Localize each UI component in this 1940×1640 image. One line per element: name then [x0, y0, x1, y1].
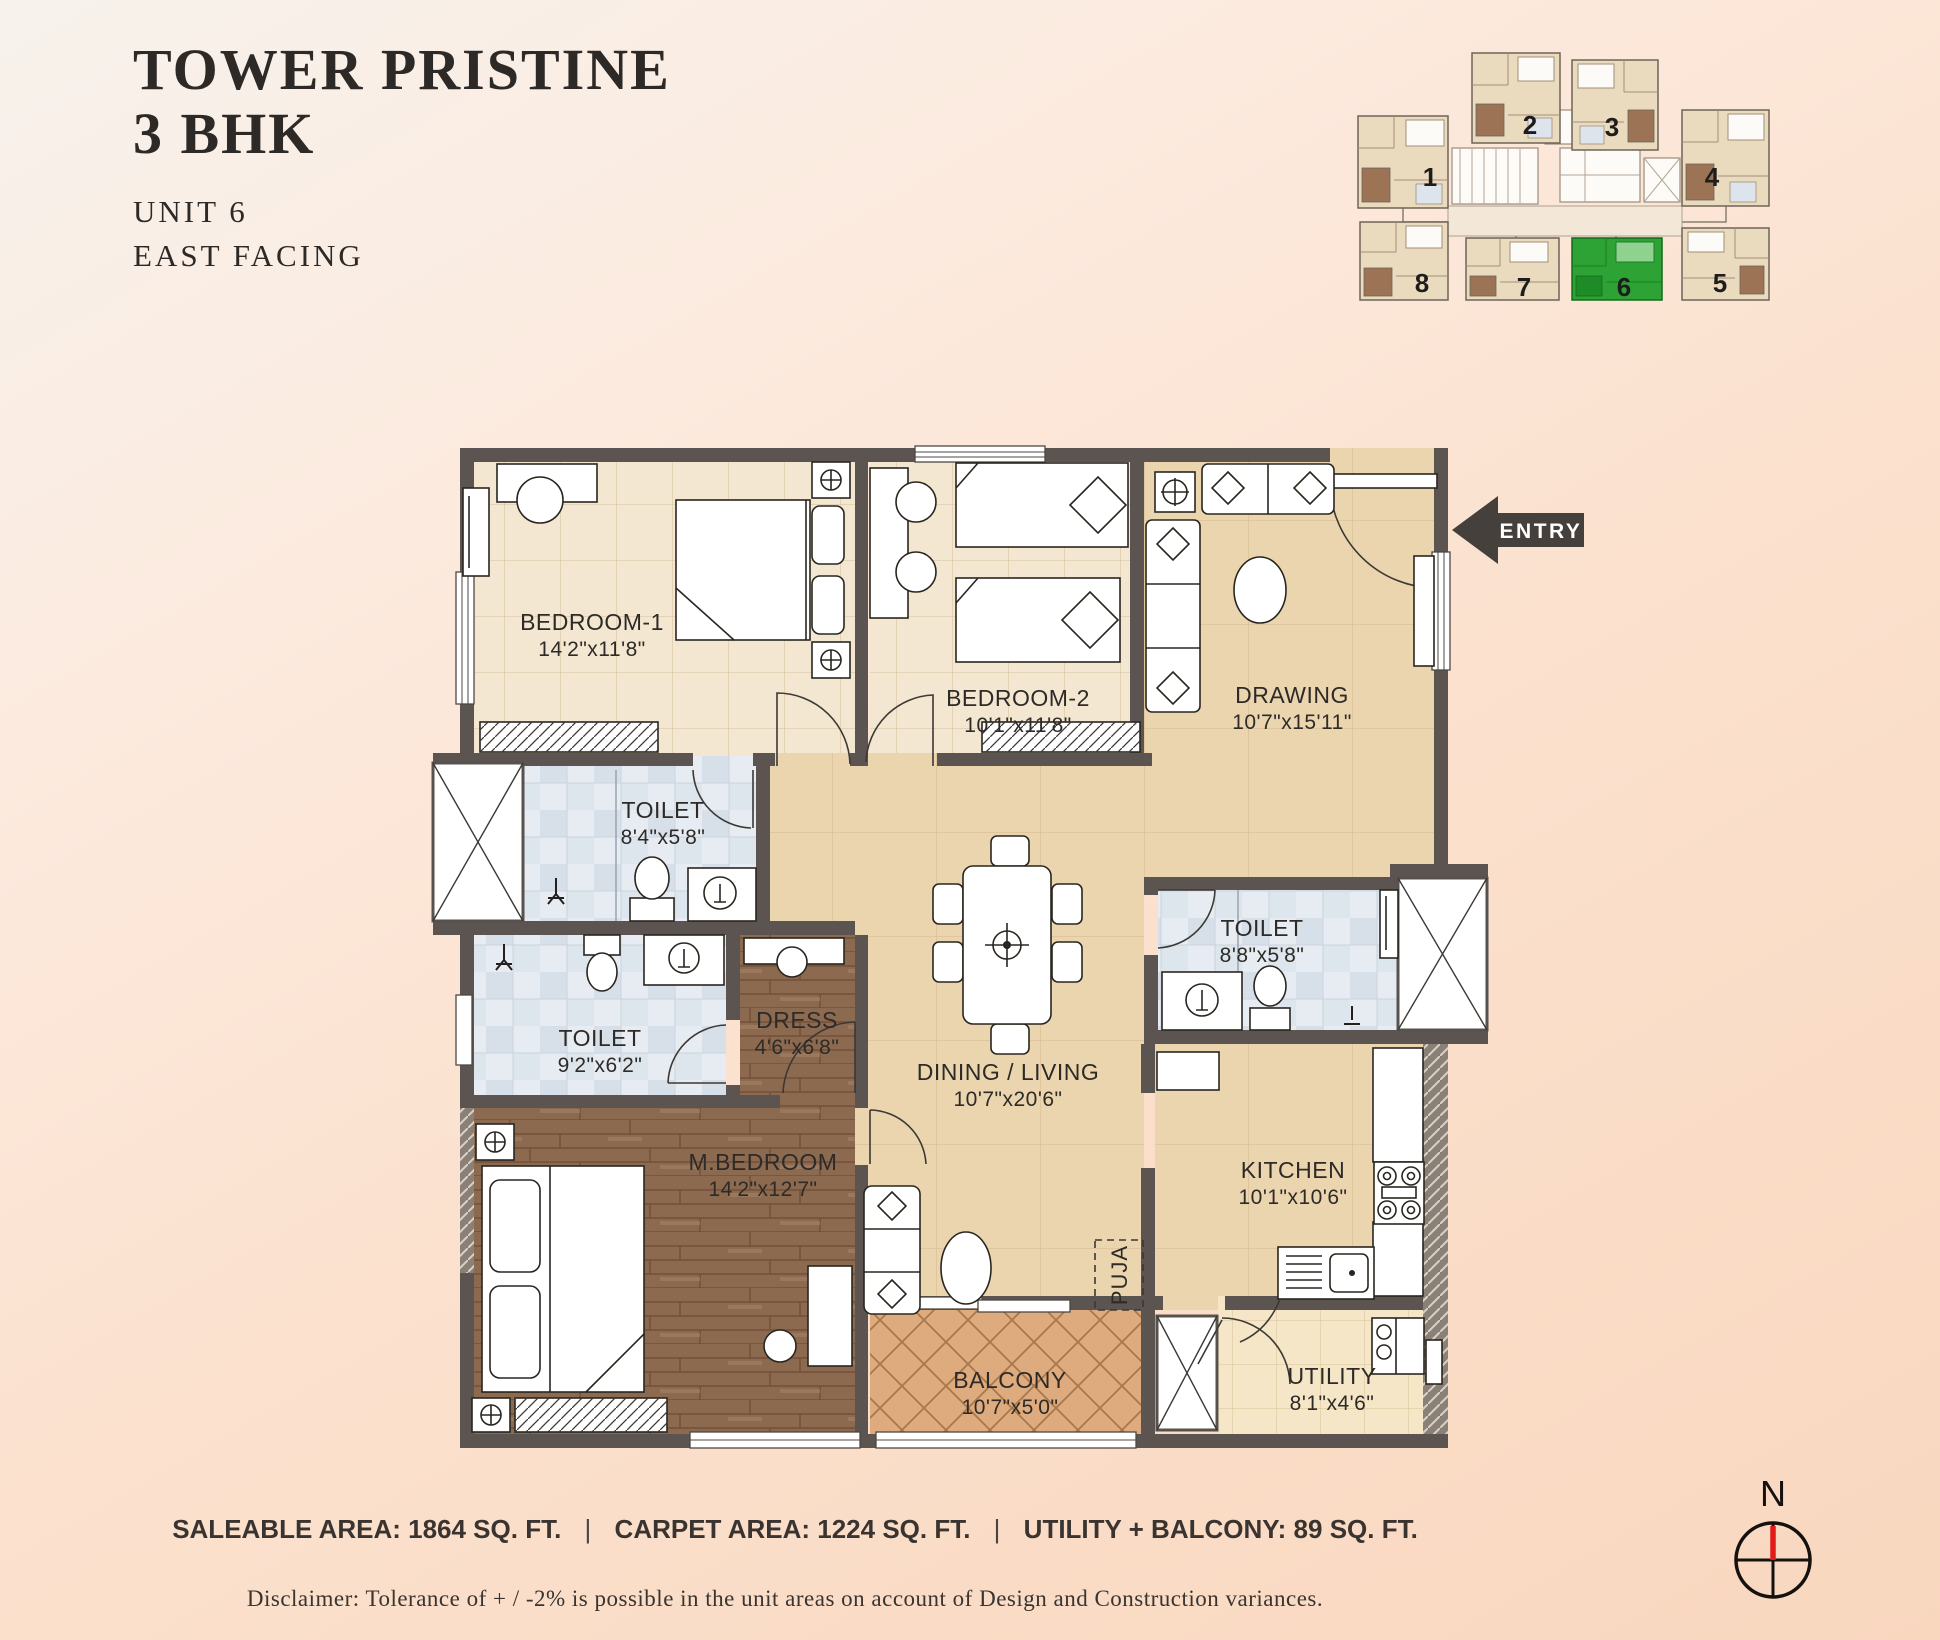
svg-text:PUJA: PUJA — [1107, 1245, 1132, 1305]
svg-text:DINING / LIVING: DINING / LIVING — [917, 1059, 1100, 1085]
title-block: TOWER PRISTINE 3 BHK UNIT 6 EAST FACING — [133, 38, 671, 274]
svg-text:14'2"x12'7": 14'2"x12'7" — [708, 1178, 817, 1201]
keyplan-unit-3: 3 — [1572, 60, 1658, 150]
svg-text:DRAWING: DRAWING — [1235, 682, 1349, 708]
svg-text:TOILET: TOILET — [558, 1025, 641, 1051]
facing-label: EAST FACING — [133, 238, 671, 274]
svg-text:4'6"x6'8": 4'6"x6'8" — [755, 1036, 840, 1059]
svg-text:4: 4 — [1705, 162, 1720, 192]
svg-text:10'7"x5'0": 10'7"x5'0" — [962, 1396, 1059, 1419]
hatched-wall-left — [460, 1108, 474, 1273]
svg-text:TOILET: TOILET — [621, 797, 704, 823]
keyplan-unit-2: 2 — [1472, 53, 1560, 143]
svg-text:UTILITY: UTILITY — [1287, 1363, 1376, 1389]
svg-text:TOILET: TOILET — [1220, 915, 1303, 941]
page-title-bhk: 3 BHK — [133, 102, 671, 166]
window-bedroom1-left — [456, 572, 474, 704]
floor-plan: BEDROOM-1 14'2"x11'8" BEDROOM-2 10'1"x11… — [420, 430, 1610, 1475]
compass: N — [1713, 1462, 1833, 1622]
svg-text:8'1"x4'6": 8'1"x4'6" — [1290, 1392, 1375, 1415]
saleable-area: SALEABLE AREA: 1864 SQ. FT. — [172, 1514, 561, 1544]
north-label: N — [1760, 1473, 1786, 1514]
utility-balcony-area: UTILITY + BALCONY: 89 SQ. FT. — [1024, 1514, 1418, 1544]
svg-text:6: 6 — [1617, 272, 1631, 302]
floor-hall — [770, 753, 855, 935]
keyplan-unit-1: 1 — [1358, 116, 1448, 208]
svg-text:9'2"x6'2": 9'2"x6'2" — [558, 1054, 643, 1077]
keyplan-unit-4: 4 — [1682, 110, 1769, 206]
entry-door-leaf — [1330, 474, 1437, 488]
window-toilet2-left — [456, 995, 472, 1065]
svg-text:7: 7 — [1517, 272, 1531, 302]
balcony-slider-right — [978, 1300, 1070, 1312]
svg-text:BEDROOM-2: BEDROOM-2 — [946, 685, 1090, 711]
brochure-page: TOWER PRISTINE 3 BHK UNIT 6 EAST FACING … — [0, 0, 1940, 1640]
svg-text:5: 5 — [1713, 268, 1727, 298]
area-stats: SALEABLE AREA: 1864 SQ. FT. | CARPET ARE… — [95, 1514, 1495, 1545]
page-title: TOWER PRISTINE — [133, 38, 671, 102]
entry-arrow: ENTRY — [1452, 496, 1584, 564]
svg-text:14'2"x11'8": 14'2"x11'8" — [538, 638, 645, 661]
svg-text:8: 8 — [1415, 268, 1429, 298]
keyplan-unit-6-highlighted: 6 — [1572, 238, 1662, 302]
disclaimer-text: Disclaimer: Tolerance of + / -2% is poss… — [85, 1586, 1485, 1612]
window-bedroom2-top — [915, 446, 1045, 462]
room-label-puja: PUJA — [1107, 1245, 1132, 1305]
svg-text:10'1"x10'6": 10'1"x10'6" — [1238, 1186, 1347, 1209]
svg-text:8'4"x5'8": 8'4"x5'8" — [621, 826, 706, 849]
separator: | — [585, 1514, 592, 1544]
keyplan-unit-5: 5 — [1682, 228, 1769, 300]
svg-text:10'1"x11'8": 10'1"x11'8" — [964, 714, 1071, 737]
svg-text:ENTRY: ENTRY — [1500, 520, 1583, 543]
svg-text:1: 1 — [1423, 162, 1437, 192]
svg-text:M.BEDROOM: M.BEDROOM — [689, 1149, 838, 1175]
keyplan-unit-8: 8 — [1360, 222, 1448, 300]
unit-label: UNIT 6 — [133, 194, 671, 230]
separator: | — [994, 1514, 1001, 1544]
svg-text:BEDROOM-1: BEDROOM-1 — [520, 609, 664, 635]
key-plan: 1 2 3 4 — [1350, 24, 1780, 310]
keyplan-unit-7: 7 — [1466, 238, 1559, 302]
svg-text:DRESS: DRESS — [756, 1007, 838, 1033]
svg-text:KITCHEN: KITCHEN — [1241, 1157, 1345, 1183]
svg-text:3: 3 — [1605, 112, 1619, 142]
svg-text:8'8"x5'8": 8'8"x5'8" — [1220, 944, 1305, 967]
svg-text:10'7"x15'11": 10'7"x15'11" — [1232, 711, 1352, 734]
svg-text:10'7"x20'6": 10'7"x20'6" — [953, 1088, 1062, 1111]
carpet-area: CARPET AREA: 1224 SQ. FT. — [615, 1514, 971, 1544]
svg-text:BALCONY: BALCONY — [953, 1367, 1066, 1393]
svg-text:2: 2 — [1523, 110, 1537, 140]
